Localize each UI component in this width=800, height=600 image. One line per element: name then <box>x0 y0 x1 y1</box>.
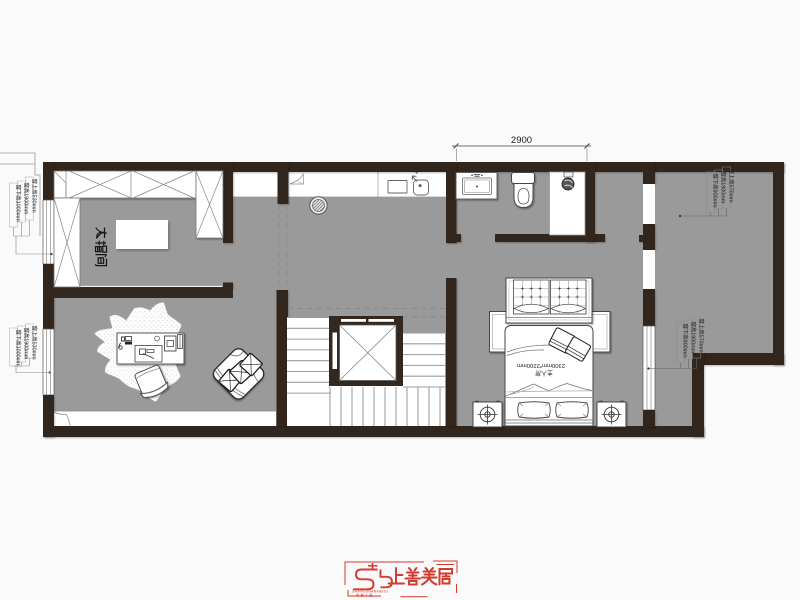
svg-text:窗下高900mm: 窗下高900mm <box>682 324 690 359</box>
svg-text:窗下高900mm: 窗下高900mm <box>712 174 720 209</box>
svg-text:窗上高570mm: 窗上高570mm <box>728 169 736 204</box>
svg-text:窗上高570mm: 窗上高570mm <box>698 319 706 354</box>
svg-text:主人房: 主人房 <box>535 369 553 377</box>
svg-text:窗高1900mm: 窗高1900mm <box>23 183 31 215</box>
svg-text:窗上高530mm: 窗上高530mm <box>31 326 39 361</box>
svg-text:窗高1900mm: 窗高1900mm <box>23 328 31 360</box>
svg-text:尚美人居: 尚美人居 <box>356 593 374 598</box>
svg-text:窗高1900mm: 窗高1900mm <box>690 322 698 354</box>
svg-text:窗下高1000mm: 窗下高1000mm <box>15 185 23 223</box>
svg-text:窗上高530mm: 窗上高530mm <box>31 179 39 214</box>
svg-text:2300mm*2200mm: 2300mm*2200mm <box>517 362 565 368</box>
svg-text:2900: 2900 <box>511 135 532 146</box>
svg-text:窗高1900mm: 窗高1900mm <box>720 172 728 204</box>
svg-text:窗下高1000mm: 窗下高1000mm <box>15 330 23 368</box>
